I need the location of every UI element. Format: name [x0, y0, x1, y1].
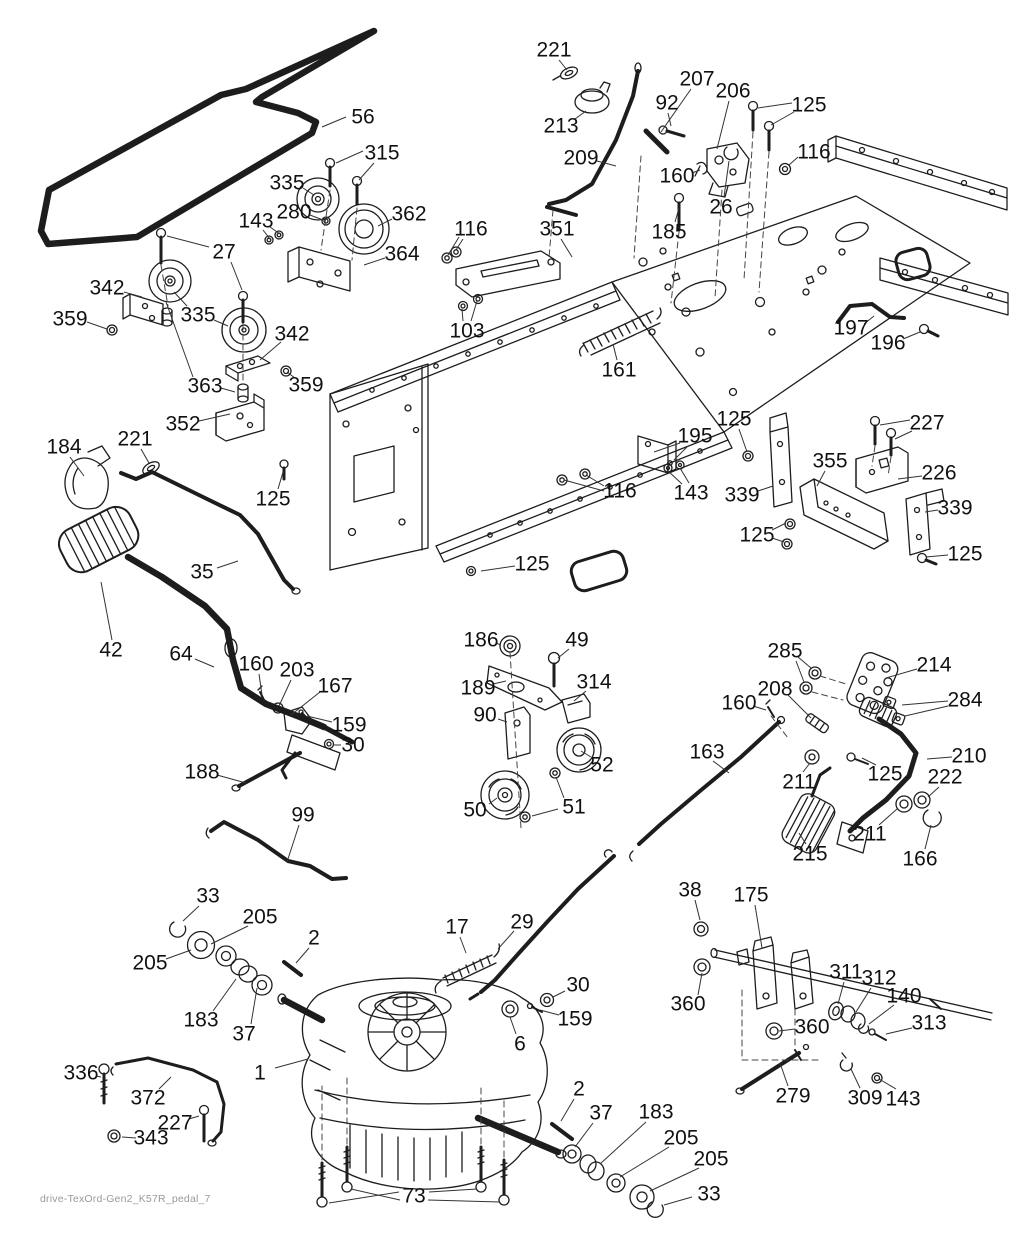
- part-label-116-44: 116: [603, 480, 636, 503]
- part-label-315-1: 315: [364, 142, 399, 165]
- leader-line-140: [869, 1005, 894, 1024]
- transaxle: [99, 922, 663, 1217]
- part-label-309-77: 309: [847, 1087, 882, 1110]
- part-label-38-68: 38: [678, 879, 701, 902]
- part-label-285-56: 285: [767, 640, 802, 663]
- leader-line-363: [221, 388, 235, 392]
- part-label-116-7: 116: [454, 218, 487, 241]
- leader-line-175: [755, 905, 762, 948]
- part-label-210-61: 210: [951, 745, 986, 768]
- leader-line-351: [561, 239, 572, 257]
- part-label-215-65: 215: [792, 843, 827, 866]
- part-label-208-58: 208: [757, 678, 792, 701]
- brake-linkage-bottom-right: [694, 922, 992, 1094]
- part-label-342-9: 342: [89, 277, 124, 300]
- leader-line-284: [905, 706, 948, 716]
- gear-shift-assembly: [442, 63, 791, 356]
- leader-line-209: [597, 161, 616, 166]
- leader-line-284: [902, 701, 948, 705]
- part-label-203-107: 203: [279, 659, 314, 682]
- leader-line-227: [880, 420, 910, 425]
- part-label-209-26: 209: [563, 147, 598, 170]
- part-label-364-6: 364: [384, 243, 419, 266]
- part-label-125-24: 125: [791, 94, 826, 117]
- leader-line-203: [279, 680, 291, 706]
- part-label-161-32: 161: [601, 359, 636, 382]
- drive-belt: [41, 31, 374, 244]
- part-label-355-37: 355: [812, 450, 847, 473]
- part-label-360-75: 360: [794, 1016, 829, 1039]
- part-label-175-69: 175: [733, 884, 768, 907]
- part-label-125-42: 125: [947, 543, 982, 566]
- leader-line-206: [717, 101, 729, 149]
- leader-line-33: [664, 1197, 692, 1205]
- part-label-92-23: 92: [655, 92, 678, 115]
- part-label-221-19: 221: [536, 39, 571, 62]
- leader-line-335: [214, 320, 228, 326]
- part-label-185-29: 185: [651, 221, 686, 244]
- leader-line-125: [481, 566, 515, 571]
- part-label-359-14: 359: [288, 374, 323, 397]
- part-label-372-92: 372: [130, 1087, 165, 1110]
- part-label-214-57: 214: [916, 654, 951, 677]
- leader-line-221: [141, 449, 149, 463]
- part-label-1-90: 1: [254, 1062, 266, 1085]
- part-label-159-88: 159: [557, 1008, 592, 1031]
- part-label-30-87: 30: [566, 974, 589, 997]
- part-label-49-48: 49: [565, 629, 588, 652]
- leader-line-183: [600, 1122, 646, 1164]
- leader-line-38: [695, 900, 700, 920]
- leader-line-279: [780, 1063, 788, 1086]
- part-label-207-21: 207: [679, 68, 714, 91]
- diagram-canvas: 5631533528036214336411627342359335342363…: [0, 0, 1024, 1249]
- part-label-205-99: 205: [663, 1127, 698, 1150]
- part-label-363-13: 363: [187, 375, 222, 398]
- part-label-140-73: 140: [886, 985, 921, 1008]
- leader-line-183: [213, 979, 236, 1011]
- leader-line-37: [575, 1123, 593, 1147]
- leader-line-315: [336, 151, 363, 163]
- part-label-336-91: 336: [63, 1062, 98, 1085]
- part-label-42-110: 42: [99, 639, 122, 662]
- leader-line-205: [620, 1147, 669, 1177]
- leader-line-315: [359, 163, 374, 180]
- part-label-35-111: 35: [190, 561, 213, 584]
- part-label-206-22: 206: [715, 80, 750, 103]
- part-label-166-67: 166: [902, 848, 937, 871]
- leader-line-42: [101, 582, 112, 640]
- leader-line-2: [561, 1099, 574, 1121]
- part-label-211-66: 211: [853, 823, 886, 846]
- part-label-116-25: 116: [797, 141, 830, 164]
- part-label-280-3: 280: [276, 201, 311, 224]
- part-label-51-53: 51: [562, 796, 585, 819]
- part-label-362-4: 362: [391, 203, 426, 226]
- bracket-group-right: [770, 413, 944, 564]
- part-label-64-109: 64: [169, 643, 193, 666]
- part-label-143-78: 143: [885, 1088, 920, 1111]
- part-label-183-98: 183: [638, 1101, 673, 1124]
- leader-line-125: [926, 555, 948, 557]
- part-label-27-8: 27: [212, 241, 235, 264]
- leader-line-6: [510, 1017, 516, 1034]
- part-label-195-43: 195: [677, 425, 712, 448]
- part-label-37-84: 37: [232, 1023, 255, 1046]
- part-label-184-16: 184: [46, 436, 81, 459]
- leader-line-205: [166, 950, 191, 959]
- part-label-339-40: 339: [937, 497, 972, 520]
- part-label-99-102: 99: [291, 804, 314, 827]
- leader-line-196: [903, 332, 920, 339]
- part-label-33-79: 33: [196, 885, 219, 908]
- leader-line-352: [199, 414, 230, 421]
- part-label-52-52: 52: [590, 754, 613, 777]
- part-label-360-70: 360: [670, 993, 705, 1016]
- leader-line-125: [758, 103, 792, 108]
- leader-line-17: [460, 937, 466, 953]
- part-label-352-15: 352: [165, 413, 200, 436]
- part-label-6-89: 6: [514, 1033, 526, 1056]
- idler-assembly-center: [481, 636, 601, 822]
- part-label-56-0: 56: [351, 106, 374, 129]
- leader-line-205: [211, 926, 248, 944]
- part-label-125-46: 125: [514, 553, 549, 576]
- leader-line-313: [886, 1028, 912, 1034]
- part-label-205-100: 205: [693, 1148, 728, 1171]
- part-label-125-35: 125: [716, 408, 751, 431]
- leader-line-1: [275, 1059, 308, 1068]
- part-label-125-18: 125: [255, 488, 290, 511]
- leader-line-166: [925, 825, 931, 849]
- part-label-335-2: 335: [269, 172, 304, 195]
- part-label-339-39: 339: [724, 484, 759, 507]
- part-label-314-50: 314: [576, 671, 611, 694]
- chassis-frame: [330, 136, 1008, 593]
- part-label-143-5: 143: [238, 210, 273, 233]
- part-label-90-51: 90: [473, 704, 496, 727]
- part-label-183-83: 183: [183, 1009, 218, 1032]
- part-label-343-94: 343: [133, 1127, 168, 1150]
- leader-line-33: [183, 906, 199, 921]
- part-label-125-41: 125: [739, 524, 774, 547]
- part-label-205-81: 205: [132, 952, 167, 975]
- part-label-33-101: 33: [697, 1183, 720, 1206]
- part-label-160-27: 160: [659, 165, 694, 188]
- leader-line-29: [498, 931, 514, 949]
- part-label-37-97: 37: [589, 1102, 612, 1125]
- part-label-2-96: 2: [573, 1078, 585, 1101]
- part-label-205-80: 205: [242, 906, 277, 929]
- leader-line-214: [886, 669, 917, 678]
- leader-line-359: [87, 322, 107, 329]
- part-label-221-17: 221: [117, 428, 152, 451]
- leader-line-56: [322, 117, 346, 127]
- part-label-160-59: 160: [721, 692, 756, 715]
- part-label-313-74: 313: [911, 1012, 946, 1035]
- leader-line-335: [303, 188, 314, 195]
- leader-line-222: [928, 787, 939, 797]
- part-label-311-71: 311: [829, 961, 862, 984]
- part-label-159-105: 159: [331, 714, 366, 737]
- part-label-163-55: 163: [689, 741, 724, 764]
- leader-line-188: [217, 775, 246, 783]
- part-label-30-104: 30: [341, 734, 364, 757]
- part-label-50-54: 50: [463, 799, 486, 822]
- leader-line-27: [231, 262, 242, 290]
- part-label-279-76: 279: [775, 1085, 810, 1108]
- leader-line-92: [668, 113, 671, 126]
- part-label-73-95: 73: [402, 1185, 425, 1208]
- part-label-284-60: 284: [947, 689, 982, 712]
- part-label-160-108: 160: [238, 653, 273, 676]
- part-label-211-62: 211: [782, 771, 815, 794]
- leader-line-309: [851, 1069, 860, 1088]
- leader-line-35: [217, 561, 238, 568]
- leader-line-364: [364, 258, 385, 265]
- part-label-186-47: 186: [463, 629, 498, 652]
- leader-line-51: [532, 809, 558, 816]
- leader-line-64: [195, 659, 214, 667]
- leader-line-2: [296, 948, 309, 963]
- drawing-code: drive-TexOrd-Gen2_K57R_pedal_7: [40, 1193, 211, 1205]
- leader-line-125: [278, 472, 283, 489]
- leader-line-99: [287, 825, 299, 862]
- leader-line-30: [553, 991, 565, 997]
- part-label-17-85: 17: [445, 916, 468, 939]
- leader-line-73: [429, 1189, 477, 1192]
- leader-line-125: [739, 429, 747, 452]
- part-label-197-33: 197: [833, 317, 868, 340]
- leader-line-210: [927, 757, 952, 759]
- part-label-227-36: 227: [909, 412, 944, 435]
- leader-line-285: [796, 661, 804, 682]
- part-labels-layer: 5631533528036214336411627342359335342363…: [46, 39, 986, 1208]
- part-label-213-20: 213: [543, 115, 578, 138]
- part-label-188-103: 188: [184, 761, 219, 784]
- part-label-226-38: 226: [921, 462, 956, 485]
- parts-diagram-page: 5631533528036214336411627342359335342363…: [0, 0, 1024, 1249]
- part-label-29-86: 29: [510, 911, 533, 934]
- leader-line-37: [251, 988, 257, 1024]
- part-label-167-106: 167: [317, 675, 352, 698]
- leader-line-205: [650, 1168, 699, 1191]
- part-label-189-49: 189: [460, 677, 495, 700]
- part-label-143-45: 143: [673, 482, 708, 505]
- leader-line-103: [471, 301, 477, 321]
- leader-line-221: [559, 60, 567, 70]
- part-label-196-34: 196: [870, 332, 905, 355]
- leader-line-339: [758, 486, 773, 491]
- part-label-335-11: 335: [180, 304, 215, 327]
- leader-line-73: [428, 1200, 500, 1202]
- part-label-2-82: 2: [308, 927, 320, 950]
- part-label-103-31: 103: [449, 320, 484, 343]
- part-label-26-28: 26: [709, 196, 732, 219]
- leader-line-226: [898, 476, 922, 479]
- part-label-342-12: 342: [274, 323, 309, 346]
- part-label-125-63: 125: [867, 763, 902, 786]
- part-label-359-10: 359: [52, 308, 87, 331]
- part-label-222-64: 222: [927, 766, 962, 789]
- part-label-351-30: 351: [539, 218, 574, 241]
- leader-line-27: [167, 236, 209, 247]
